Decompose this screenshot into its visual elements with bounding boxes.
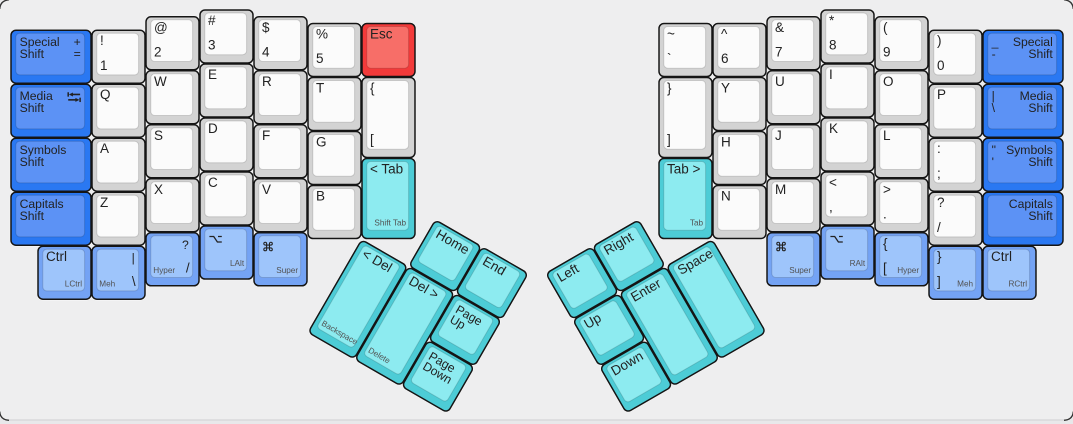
svg-text:LCtrl: LCtrl <box>65 279 82 288</box>
svg-text:@: @ <box>154 20 168 35</box>
svg-text:}: } <box>667 81 672 96</box>
svg-text:3: 3 <box>208 38 216 53</box>
svg-text:Tab: Tab <box>690 219 704 228</box>
svg-text:&: & <box>775 20 784 35</box>
svg-text:>: > <box>883 182 891 197</box>
svg-text:[: [ <box>883 260 887 275</box>
svg-text:X: X <box>154 182 163 197</box>
svg-text:Hyper: Hyper <box>153 266 175 275</box>
svg-text:^: ^ <box>721 27 728 42</box>
svg-text:Esc: Esc <box>370 27 393 42</box>
svg-text:D: D <box>208 121 218 136</box>
svg-text:]: ] <box>667 132 671 147</box>
svg-text:Shift: Shift <box>1028 47 1053 61</box>
svg-text:LAlt: LAlt <box>230 259 245 268</box>
svg-text:,: , <box>829 200 833 215</box>
svg-text:<: < <box>829 175 837 190</box>
svg-text:J: J <box>775 128 782 143</box>
svg-text:#: # <box>208 13 216 28</box>
svg-text:Shift: Shift <box>20 209 45 223</box>
svg-text:.: . <box>883 206 887 221</box>
svg-text:~: ~ <box>667 27 675 42</box>
svg-text:Shift: Shift <box>20 47 45 61</box>
svg-text:Tab >: Tab > <box>667 162 701 177</box>
svg-text:RAlt: RAlt <box>850 259 866 268</box>
svg-text:S: S <box>154 128 163 143</box>
svg-text:Meh: Meh <box>99 279 115 288</box>
svg-text:9: 9 <box>883 45 891 60</box>
svg-text:Shift: Shift <box>1028 101 1053 115</box>
svg-text:T: T <box>316 81 324 96</box>
svg-text:Meh: Meh <box>957 279 973 288</box>
svg-text:Ctrl: Ctrl <box>46 249 67 264</box>
svg-text:M: M <box>775 182 786 197</box>
svg-text:Q: Q <box>100 87 111 102</box>
svg-text:Shift: Shift <box>20 101 45 115</box>
svg-text:O: O <box>883 74 894 89</box>
svg-text:/: / <box>937 220 941 235</box>
svg-text:A: A <box>100 141 109 156</box>
svg-text:Super: Super <box>276 266 298 275</box>
svg-text:F: F <box>262 128 270 143</box>
svg-text:1: 1 <box>100 58 108 73</box>
svg-text:U: U <box>775 74 785 89</box>
svg-text:): ) <box>937 33 942 48</box>
svg-text:R: R <box>262 74 272 89</box>
svg-text:Hyper: Hyper <box>897 266 919 275</box>
svg-text:W: W <box>154 74 167 89</box>
svg-text:Super: Super <box>789 266 811 275</box>
svg-text:Z: Z <box>100 195 108 210</box>
svg-text:?: ? <box>937 195 945 210</box>
svg-text:': ' <box>992 155 994 169</box>
svg-text:Shift: Shift <box>1028 209 1053 223</box>
svg-text:0: 0 <box>937 58 945 73</box>
svg-text:*: * <box>829 13 835 28</box>
svg-text:L: L <box>883 128 891 143</box>
svg-text:{: { <box>370 81 375 96</box>
svg-text:\: \ <box>132 274 136 289</box>
svg-text:/: / <box>186 260 190 275</box>
svg-text:< Tab: < Tab <box>370 162 403 177</box>
svg-text:N: N <box>721 189 731 204</box>
svg-text:-: - <box>992 47 996 61</box>
svg-text:{: { <box>883 236 888 251</box>
svg-text:=: = <box>74 47 81 61</box>
svg-text:RCtrl: RCtrl <box>1008 279 1027 288</box>
svg-text:6: 6 <box>721 51 729 66</box>
svg-text:;: ; <box>937 166 941 181</box>
svg-text:$: $ <box>262 20 270 35</box>
svg-text:V: V <box>262 182 271 197</box>
svg-text:?: ? <box>182 238 189 252</box>
svg-text:7: 7 <box>775 45 783 60</box>
svg-text:B: B <box>316 189 325 204</box>
svg-text::: : <box>937 141 941 156</box>
svg-text:`: ` <box>667 51 672 66</box>
svg-text:8: 8 <box>829 38 837 53</box>
svg-text:%: % <box>316 27 328 42</box>
svg-text:|: | <box>132 251 135 265</box>
svg-text:I: I <box>829 67 833 82</box>
svg-text:H: H <box>721 135 731 150</box>
svg-text:Shift: Shift <box>1028 155 1053 169</box>
svg-text:Y: Y <box>721 81 730 96</box>
svg-text:4: 4 <box>262 45 270 60</box>
svg-text:Ctrl: Ctrl <box>991 249 1012 264</box>
svg-text:!: ! <box>100 33 104 48</box>
svg-text:Shift: Shift <box>20 155 45 169</box>
svg-text:E: E <box>208 67 217 82</box>
svg-text:G: G <box>316 135 327 150</box>
svg-text:}: } <box>937 249 942 264</box>
svg-text:]: ] <box>937 274 941 289</box>
svg-text:[: [ <box>370 132 374 147</box>
svg-text:K: K <box>829 121 838 136</box>
svg-text:Shift Tab: Shift Tab <box>374 219 406 228</box>
svg-text:P: P <box>937 87 946 102</box>
svg-text:5: 5 <box>316 51 324 66</box>
svg-text:2: 2 <box>154 45 162 60</box>
svg-text:C: C <box>208 175 218 190</box>
svg-text:(: ( <box>883 20 888 35</box>
